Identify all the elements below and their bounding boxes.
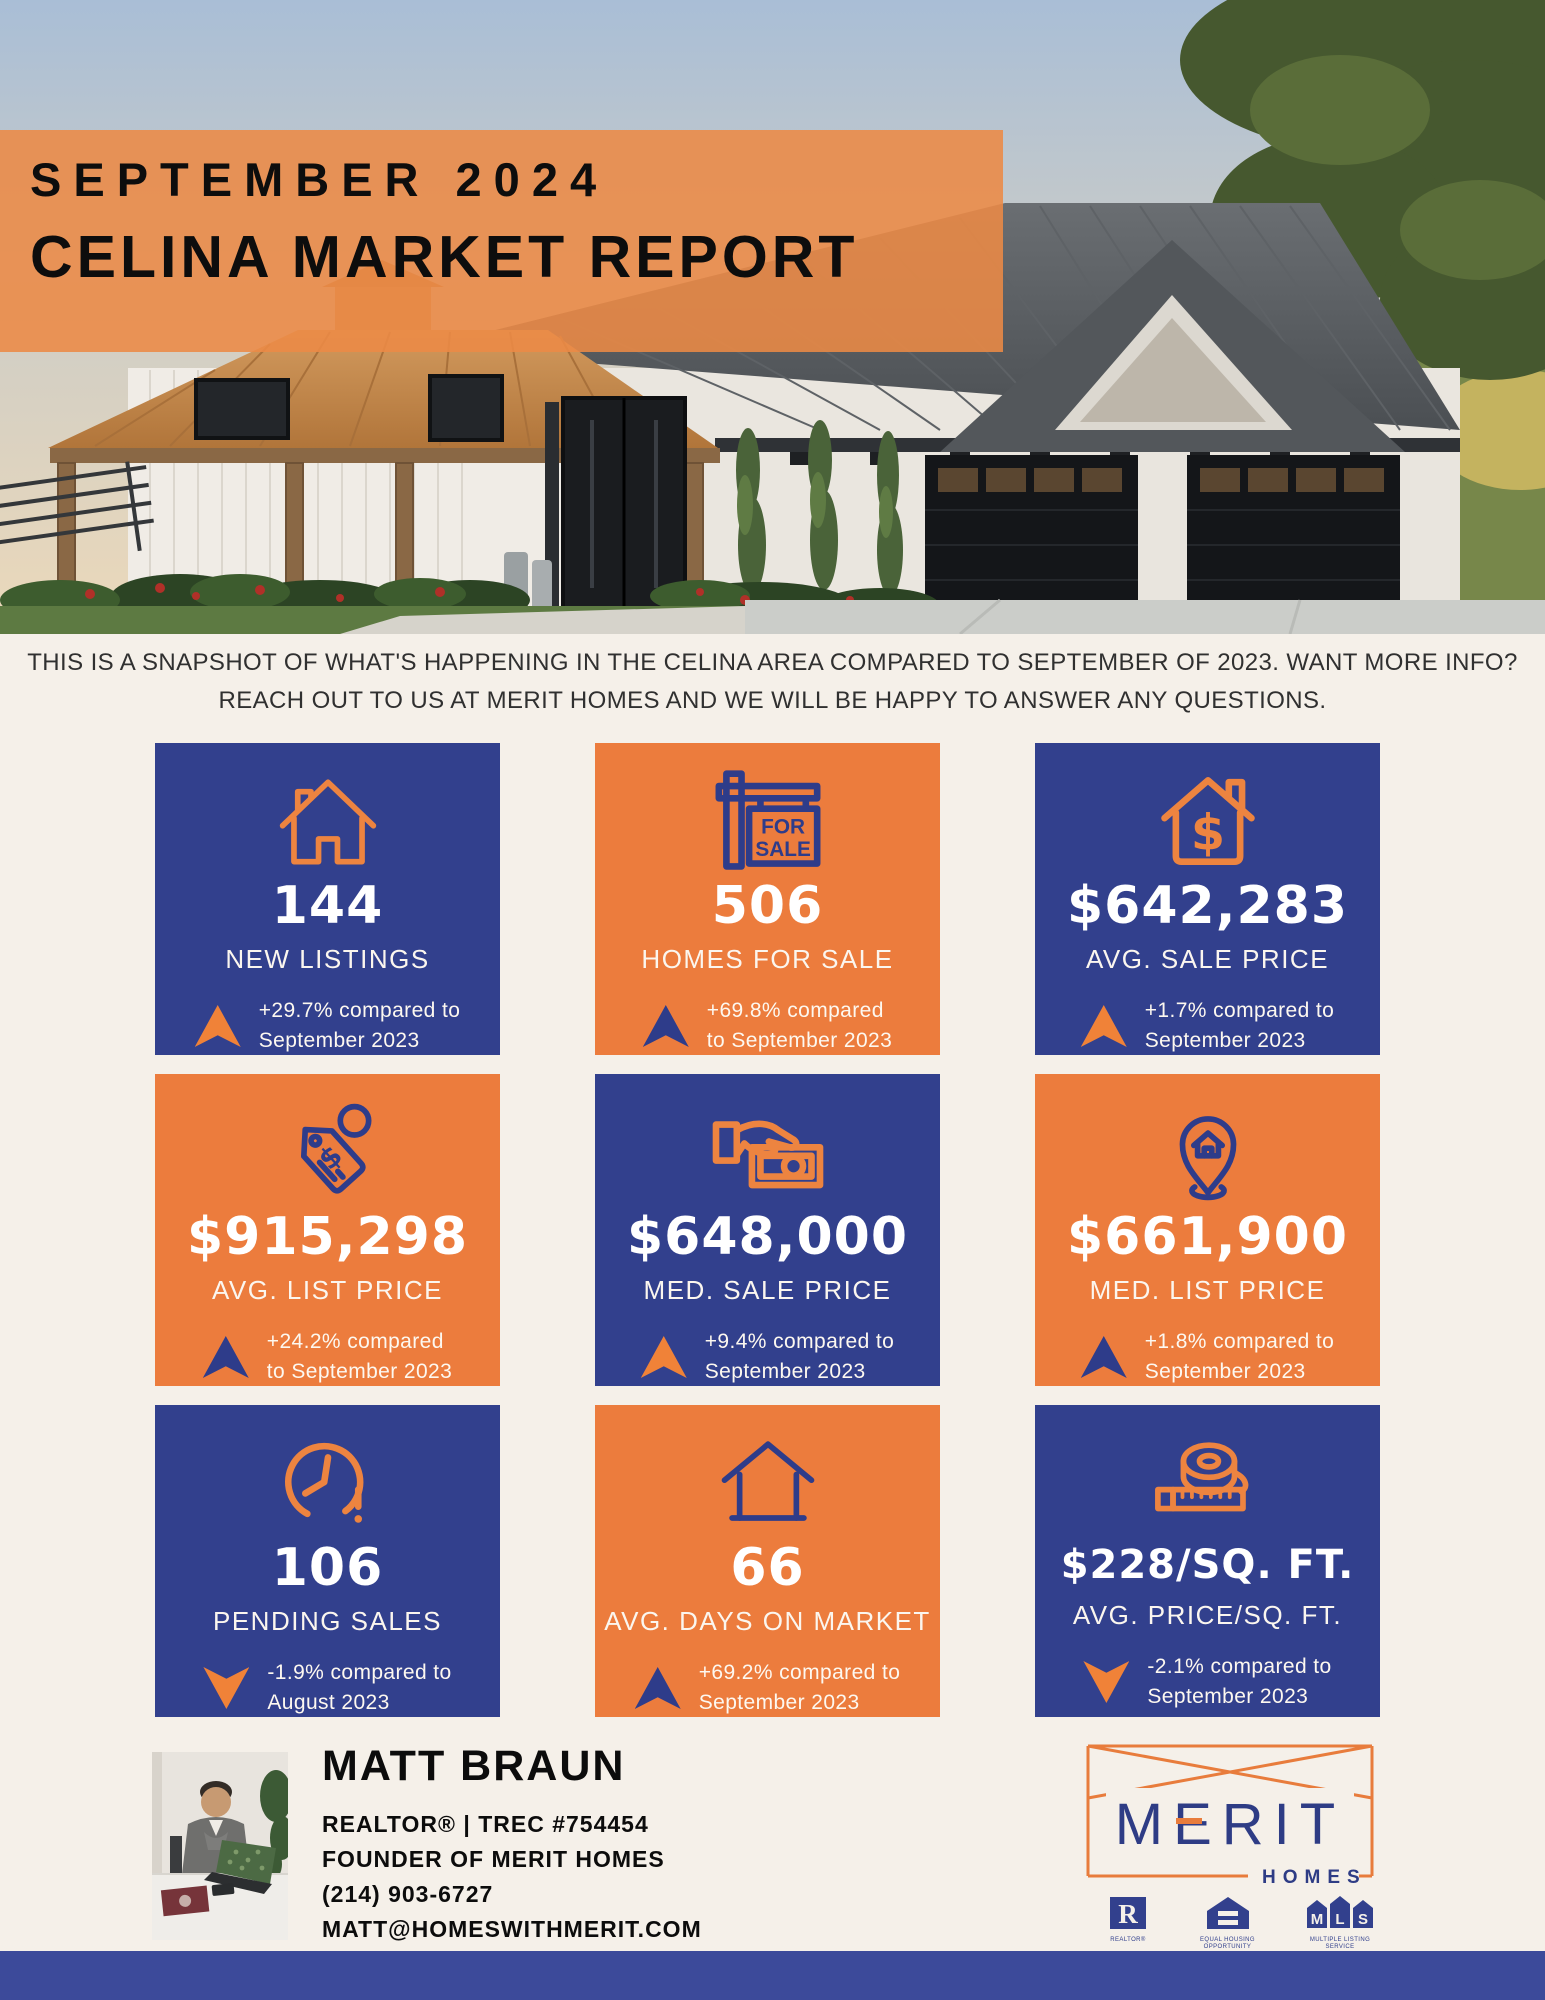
stat-value: $915,298: [155, 1208, 500, 1266]
agent-title: FOUNDER OF MERIT HOMES: [322, 1842, 702, 1877]
stat-label: AVG. LIST PRICE: [155, 1275, 500, 1306]
stat-value: 506: [595, 877, 940, 935]
stat-delta: +69.8% compared to September 2023: [595, 996, 940, 1056]
delta-line-2: September 2023: [699, 1688, 901, 1718]
hand-money-icon: [703, 1100, 833, 1204]
mls-icon: M L S: [1307, 1896, 1373, 1934]
card-avg-price-per-sqft: $228/SQ. FT. AVG. PRICE/SQ. FT. -2.1% co…: [1035, 1405, 1380, 1717]
delta-line-1: -2.1% compared to: [1147, 1652, 1331, 1682]
delta-line-1: +9.4% compared to: [705, 1327, 895, 1357]
up-arrow-icon: [1081, 1336, 1127, 1378]
stat-delta: +29.7% compared to September 2023: [155, 996, 500, 1056]
delta-line-1: +1.8% compared to: [1145, 1327, 1335, 1357]
svg-text:M: M: [1311, 1911, 1324, 1928]
stat-delta: +1.7% compared to September 2023: [1035, 996, 1380, 1056]
agent-email[interactable]: MATT@HOMESWITHMERIT.COM: [322, 1912, 702, 1947]
card-homes-for-sale: FOR SALE 506 HOMES FOR SALE +69.8% compa…: [595, 743, 940, 1055]
svg-text:L: L: [1335, 1911, 1344, 1928]
card-med-sale-price: $648,000 MED. SALE PRICE +9.4% compared …: [595, 1074, 940, 1386]
stat-value: 106: [155, 1539, 500, 1597]
agent-photo: [152, 1752, 288, 1940]
delta-line-1: +69.2% compared to: [699, 1658, 901, 1688]
sign-text-sale: SALE: [755, 838, 811, 861]
delta-line-2: August 2023: [267, 1688, 451, 1718]
clock-icon: [268, 1431, 388, 1535]
up-arrow-icon: [641, 1336, 687, 1378]
stat-value: $228/SQ. FT.: [1035, 1539, 1380, 1591]
stat-label: MED. LIST PRICE: [1035, 1275, 1380, 1306]
merit-logo-art: MERIT HOMES: [1075, 1736, 1385, 1886]
price-tag-icon: $: [268, 1100, 388, 1204]
stat-delta: +1.8% compared to September 2023: [1035, 1327, 1380, 1387]
title-banner: SEPTEMBER 2024 CELINA MARKET REPORT: [0, 130, 1003, 352]
delta-line-1: +29.7% compared to: [259, 996, 461, 1026]
stat-label: AVG. DAYS ON MARKET: [595, 1606, 940, 1637]
house-outline-icon: [708, 1431, 828, 1535]
mls-logo: M L S MULTIPLE LISTING SERVICE: [1307, 1896, 1373, 1951]
cert-caption: REALTOR®: [1110, 1937, 1145, 1944]
agent-license: REALTOR® | TREC #754454: [322, 1807, 702, 1842]
sign-text-for: FOR: [761, 815, 805, 838]
homes-wordmark: HOMES: [1262, 1867, 1367, 1886]
delta-line-2: September 2023: [1145, 1357, 1335, 1387]
delta-line-1: +24.2% compared: [267, 1327, 452, 1357]
delta-line-1: +69.8% compared: [707, 996, 892, 1026]
up-arrow-icon: [635, 1667, 681, 1709]
stat-delta: -2.1% compared to September 2023: [1035, 1652, 1380, 1712]
stat-label: PENDING SALES: [155, 1606, 500, 1637]
card-avg-sale-price: $ $642,283 AVG. SALE PRICE +1.7% compare…: [1035, 743, 1380, 1055]
merit-wordmark: MERIT: [1115, 1792, 1345, 1857]
agent-phone[interactable]: (214) 903-6727: [322, 1877, 702, 1912]
up-arrow-icon: [1081, 1005, 1127, 1047]
market-report-page: SEPTEMBER 2024 CELINA MARKET REPORT THIS…: [0, 0, 1545, 2000]
for-sale-sign-icon: FOR SALE: [708, 769, 828, 873]
footer-bar: [0, 1951, 1545, 2000]
agent-info: MATT BRAUN REALTOR® | TREC #754454 FOUND…: [322, 1742, 702, 1947]
delta-line-2: September 2023: [1147, 1682, 1331, 1712]
delta-line-2: to September 2023: [707, 1026, 892, 1056]
delta-line-2: September 2023: [1145, 1026, 1335, 1056]
delta-line-2: September 2023: [259, 1026, 461, 1056]
stat-value: 144: [155, 877, 500, 935]
stat-delta: +24.2% compared to September 2023: [155, 1327, 500, 1387]
location-pin-house-icon: [1148, 1100, 1268, 1204]
down-arrow-icon: [203, 1667, 249, 1709]
stat-delta: +9.4% compared to September 2023: [595, 1327, 940, 1387]
svg-text:$: $: [1190, 803, 1224, 861]
realtor-logo: R REALTOR®: [1108, 1896, 1148, 1944]
equal-housing-icon: [1206, 1896, 1250, 1934]
stat-value: $648,000: [595, 1208, 940, 1266]
intro-line-1: THIS IS A SNAPSHOT OF WHAT'S HAPPENING I…: [0, 644, 1545, 682]
stat-label: HOMES FOR SALE: [595, 944, 940, 975]
tape-measure-icon: [1143, 1431, 1273, 1535]
delta-line-2: to September 2023: [267, 1357, 452, 1387]
stats-grid: 144 NEW LISTINGS +29.7% compared to Sept…: [155, 743, 1380, 1717]
merit-homes-logo: MERIT HOMES: [1075, 1736, 1385, 1886]
stat-label: MED. SALE PRICE: [595, 1275, 940, 1306]
delta-line-1: -1.9% compared to: [267, 1658, 451, 1688]
stat-label: AVG. PRICE/SQ. FT.: [1035, 1600, 1380, 1631]
stat-value: $642,283: [1035, 877, 1380, 935]
stat-value: $661,900: [1035, 1208, 1380, 1266]
up-arrow-icon: [643, 1005, 689, 1047]
realtor-r-icon: R: [1108, 1896, 1148, 1934]
house-icon: [268, 769, 388, 873]
stat-label: AVG. SALE PRICE: [1035, 944, 1380, 975]
down-arrow-icon: [1083, 1661, 1129, 1703]
delta-line-1: +1.7% compared to: [1145, 996, 1335, 1026]
page-title: CELINA MARKET REPORT: [30, 224, 1003, 290]
report-date: SEPTEMBER 2024: [30, 152, 1003, 208]
house-dollar-icon: $: [1148, 769, 1268, 873]
agent-photo-art: [152, 1752, 288, 1940]
agent-name: MATT BRAUN: [322, 1742, 702, 1791]
card-pending-sales: 106 PENDING SALES -1.9% compared to Augu…: [155, 1405, 500, 1717]
cert-caption: MULTIPLE LISTING SERVICE: [1308, 1937, 1372, 1951]
stat-delta: +69.2% compared to September 2023: [595, 1658, 940, 1718]
card-avg-list-price: $ $915,298 AVG. LIST PRICE +24.2% compar…: [155, 1074, 500, 1386]
card-med-list-price: $661,900 MED. LIST PRICE +1.8% compared …: [1035, 1074, 1380, 1386]
stat-value: 66: [595, 1539, 940, 1597]
stat-delta: -1.9% compared to August 2023: [155, 1658, 500, 1718]
svg-text:R: R: [1118, 1899, 1138, 1929]
svg-text:S: S: [1358, 1911, 1368, 1928]
equal-housing-logo: EQUAL HOUSING OPPORTUNITY: [1196, 1896, 1260, 1951]
stat-label: NEW LISTINGS: [155, 944, 500, 975]
certification-logos: R REALTOR® EQUAL HOUSING OPPORTUNITY M L…: [1108, 1896, 1373, 1951]
up-arrow-icon: [203, 1336, 249, 1378]
intro-text: THIS IS A SNAPSHOT OF WHAT'S HAPPENING I…: [0, 644, 1545, 720]
card-avg-days-on-market: 66 AVG. DAYS ON MARKET +69.2% compared t…: [595, 1405, 940, 1717]
card-new-listings: 144 NEW LISTINGS +29.7% compared to Sept…: [155, 743, 500, 1055]
delta-line-2: September 2023: [705, 1357, 895, 1387]
intro-line-2: REACH OUT TO US AT MERIT HOMES AND WE WI…: [0, 682, 1545, 720]
cert-caption: EQUAL HOUSING OPPORTUNITY: [1196, 1937, 1260, 1951]
up-arrow-icon: [195, 1005, 241, 1047]
